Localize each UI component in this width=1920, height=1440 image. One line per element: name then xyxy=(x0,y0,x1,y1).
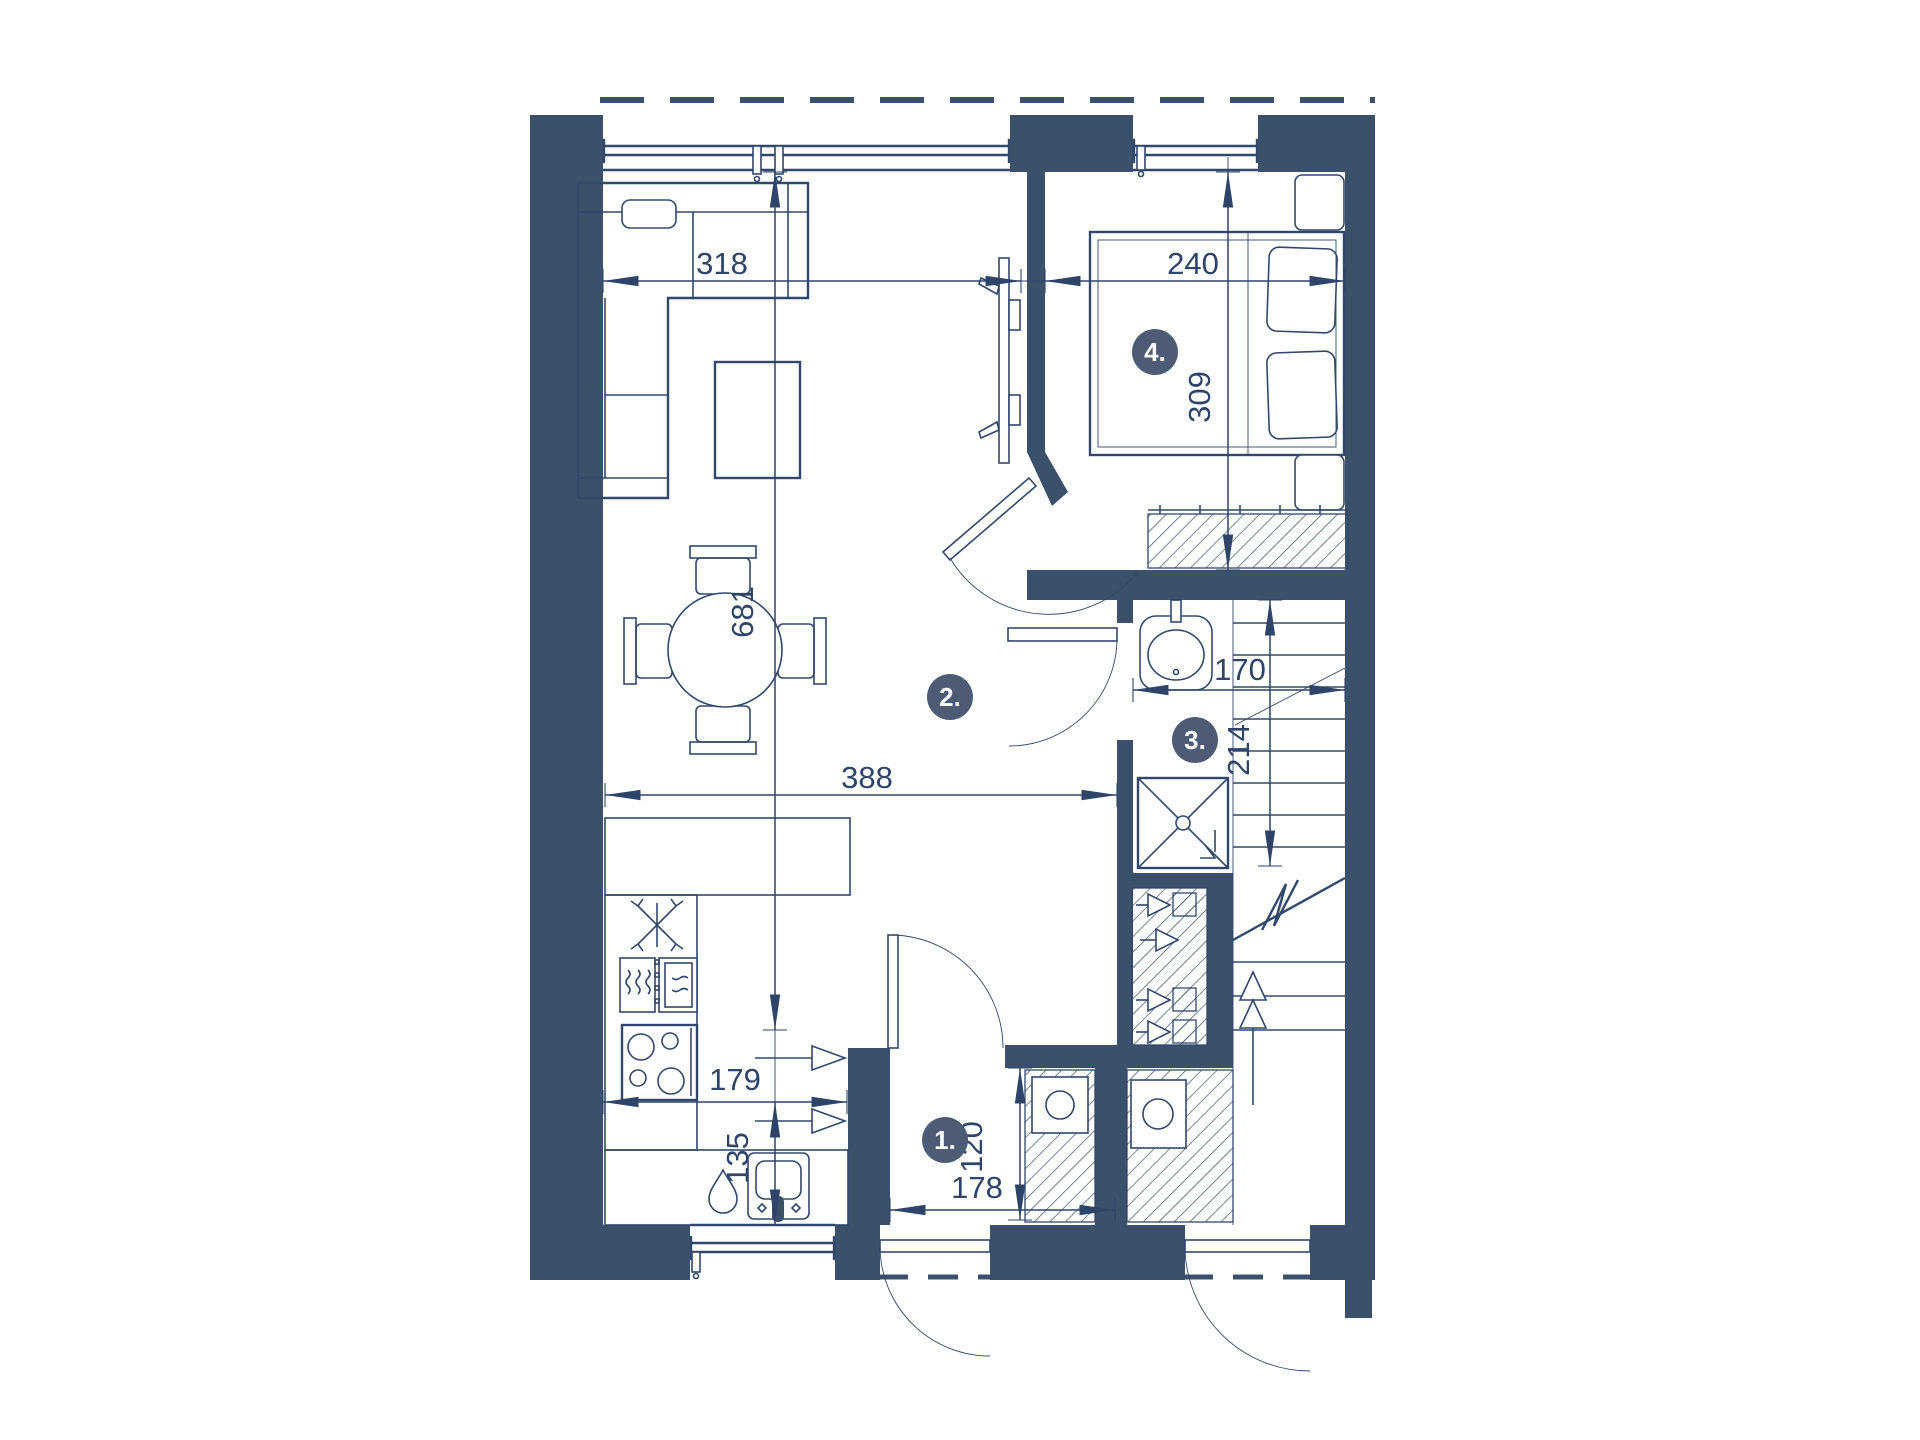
room-badge-label: 4. xyxy=(1144,337,1166,367)
dim-label-309: 309 xyxy=(1182,371,1217,423)
window-living xyxy=(603,139,1010,182)
dim-label-388: 388 xyxy=(841,760,893,795)
dim-label-214: 214 xyxy=(1221,724,1256,776)
oven-icon xyxy=(655,958,697,1012)
room-badge-label: 1. xyxy=(934,1125,956,1155)
room-badge-label: 3. xyxy=(1184,725,1206,755)
stairs xyxy=(1233,600,1345,1225)
window-handle-icon xyxy=(692,1252,700,1279)
room-badge-bathroom: 3. xyxy=(1172,717,1218,763)
coffee-table xyxy=(715,362,800,478)
door-hall xyxy=(888,935,1003,1048)
door-entrance-right xyxy=(1185,1240,1310,1371)
nightstand-top xyxy=(1295,175,1344,230)
fridge-snowflake-icon xyxy=(631,899,683,951)
room-badge-bedroom: 4. xyxy=(1132,329,1178,375)
dim-label-318: 318 xyxy=(696,246,748,281)
room-badge-label: 2. xyxy=(939,682,961,712)
faucet-icon xyxy=(772,1196,784,1222)
window-bedroom xyxy=(1133,139,1258,177)
dining-table xyxy=(624,546,826,754)
dim-label-135: 135 xyxy=(720,1132,755,1184)
room-badge-living: 2. xyxy=(927,674,973,720)
sofa-pillow xyxy=(622,200,676,228)
window-handle-icon xyxy=(753,146,783,182)
door-bathroom xyxy=(1008,628,1117,746)
window-kitchen xyxy=(690,1225,835,1279)
vent-shaft xyxy=(1132,888,1207,1045)
shower xyxy=(1138,778,1228,868)
dim-label-178: 178 xyxy=(951,1170,1003,1205)
dim-label-179: 179 xyxy=(709,1062,761,1097)
floor-plan-canvas: 318 240 309 681 170 214 388 179 135 120 … xyxy=(0,0,1920,1440)
microwave-icon xyxy=(620,958,655,1012)
door-entrance-left xyxy=(880,1240,990,1356)
room-badge-hall: 1. xyxy=(922,1117,968,1163)
chair-back xyxy=(690,546,756,558)
stair-break-line xyxy=(1233,878,1345,940)
kitchen-sink xyxy=(748,1153,809,1222)
nightstand-bottom xyxy=(1295,455,1344,510)
washer-closet-left xyxy=(1025,1070,1095,1222)
wardrobe xyxy=(1148,505,1348,568)
dim-label-240: 240 xyxy=(1167,246,1219,281)
washer-closet-right xyxy=(1127,1070,1233,1222)
hob-icon xyxy=(622,1025,697,1100)
passage-arrows xyxy=(755,1046,845,1133)
dim-label-681: 681 xyxy=(725,586,760,638)
dim-label-170: 170 xyxy=(1214,652,1266,687)
stairs-up-arrow-icon xyxy=(1240,972,1266,1105)
window-handle-icon xyxy=(1137,146,1145,177)
tv-unit xyxy=(979,258,1020,463)
washbasin xyxy=(1140,600,1212,690)
floor-plan: 318 240 309 681 170 214 388 179 135 120 … xyxy=(0,0,1920,1440)
